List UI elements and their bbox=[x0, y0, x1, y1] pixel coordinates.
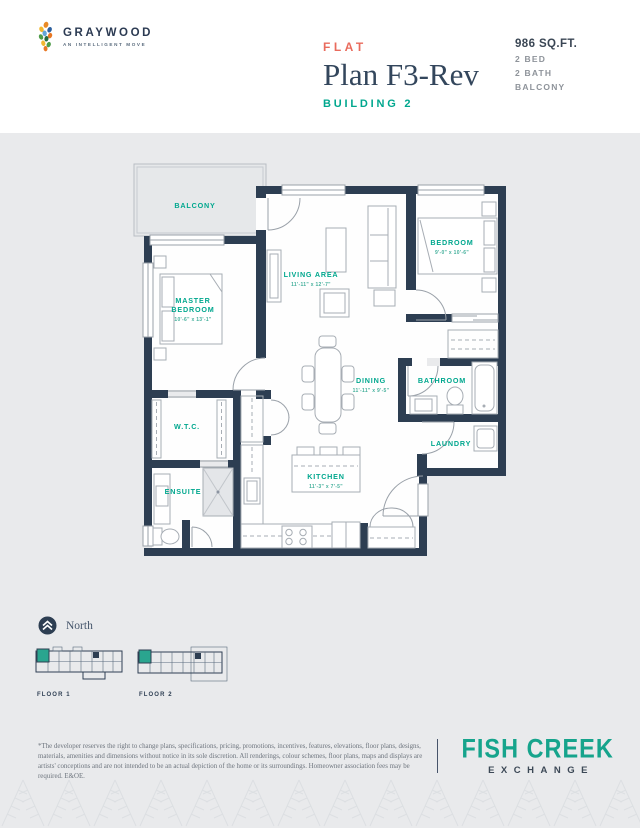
graywood-logo-text: GRAYWOOD AN INTELLIGENT MOVE bbox=[63, 27, 153, 47]
balcony-deck bbox=[134, 164, 266, 236]
footer-divider bbox=[437, 739, 438, 773]
wtc-label: W.T.C. bbox=[174, 422, 200, 431]
logo-name: GRAYWOOD bbox=[63, 27, 153, 39]
graywood-logo-icon bbox=[37, 20, 55, 53]
floor-1-keyplate bbox=[33, 641, 125, 692]
leaf-pattern bbox=[0, 772, 640, 828]
living-area-dims: 11'-11" x 12'-7" bbox=[291, 282, 331, 288]
laundry-label: LAUNDRY bbox=[431, 439, 471, 448]
master-bedroom-dims: 10'-6" x 13'-1" bbox=[174, 317, 212, 323]
bedroom-label: BEDROOM bbox=[430, 238, 473, 247]
master-bedroom-label-1: MASTER bbox=[175, 296, 210, 305]
logo-tagline: AN INTELLIGENT MOVE bbox=[63, 42, 153, 47]
building-label: BUILDING 2 bbox=[323, 98, 479, 110]
graywood-logo: GRAYWOOD AN INTELLIGENT MOVE bbox=[37, 20, 153, 53]
area-value: 986 SQ.FT. bbox=[515, 38, 577, 50]
feature-balcony: BALCONY bbox=[515, 82, 577, 92]
feature-bath: 2 BATH bbox=[515, 68, 577, 78]
floorplan-svg: BALCONY MASTER BEDROOM 10'-6" x 13'-1" L… bbox=[130, 150, 512, 567]
unit-type: FLAT bbox=[323, 40, 479, 54]
kitchen-dims: 11'-3" x 7'-5" bbox=[309, 484, 343, 490]
dining-dims: 11'-11" x 9'-5" bbox=[353, 388, 390, 394]
bedroom-dims: 9'-0" x 10'-6" bbox=[435, 250, 469, 256]
brand-name: FISH CREEK bbox=[462, 733, 614, 765]
floor-2-keyplate bbox=[135, 644, 229, 691]
floorplan-drawing: BALCONY MASTER BEDROOM 10'-6" x 13'-1" L… bbox=[130, 150, 512, 572]
header: GRAYWOOD AN INTELLIGENT MOVE FLAT Plan F… bbox=[0, 0, 640, 133]
dining-label: DINING bbox=[356, 376, 386, 385]
ensuite-label: ENSUITE bbox=[165, 487, 202, 496]
plan-name: Plan F3-Rev bbox=[323, 57, 479, 93]
highlighted-unit-floor2 bbox=[139, 650, 151, 663]
north-compass-icon bbox=[38, 616, 57, 635]
master-bedroom-label-2: BEDROOM bbox=[171, 305, 214, 314]
kitchen-label: KITCHEN bbox=[307, 472, 345, 481]
balcony-label: BALCONY bbox=[174, 201, 215, 210]
living-area-label: LIVING AREA bbox=[284, 270, 339, 279]
title-block: FLAT Plan F3-Rev BUILDING 2 bbox=[323, 40, 479, 110]
bathroom-label: BATHROOM bbox=[418, 376, 466, 385]
specs-block: 986 SQ.FT. 2 BED 2 BATH BALCONY bbox=[515, 38, 577, 92]
highlighted-unit-floor1 bbox=[37, 649, 49, 662]
floor-2-label: FLOOR 2 bbox=[139, 692, 173, 698]
north-label: North bbox=[66, 620, 93, 632]
feature-bed: 2 BED bbox=[515, 54, 577, 64]
north-indicator: North bbox=[38, 616, 93, 635]
fish-creek-logo: FISH CREEK EXCHANGE bbox=[460, 735, 616, 776]
floorplan-sheet: GRAYWOOD AN INTELLIGENT MOVE FLAT Plan F… bbox=[0, 0, 640, 828]
floor-1-label: FLOOR 1 bbox=[37, 692, 71, 698]
